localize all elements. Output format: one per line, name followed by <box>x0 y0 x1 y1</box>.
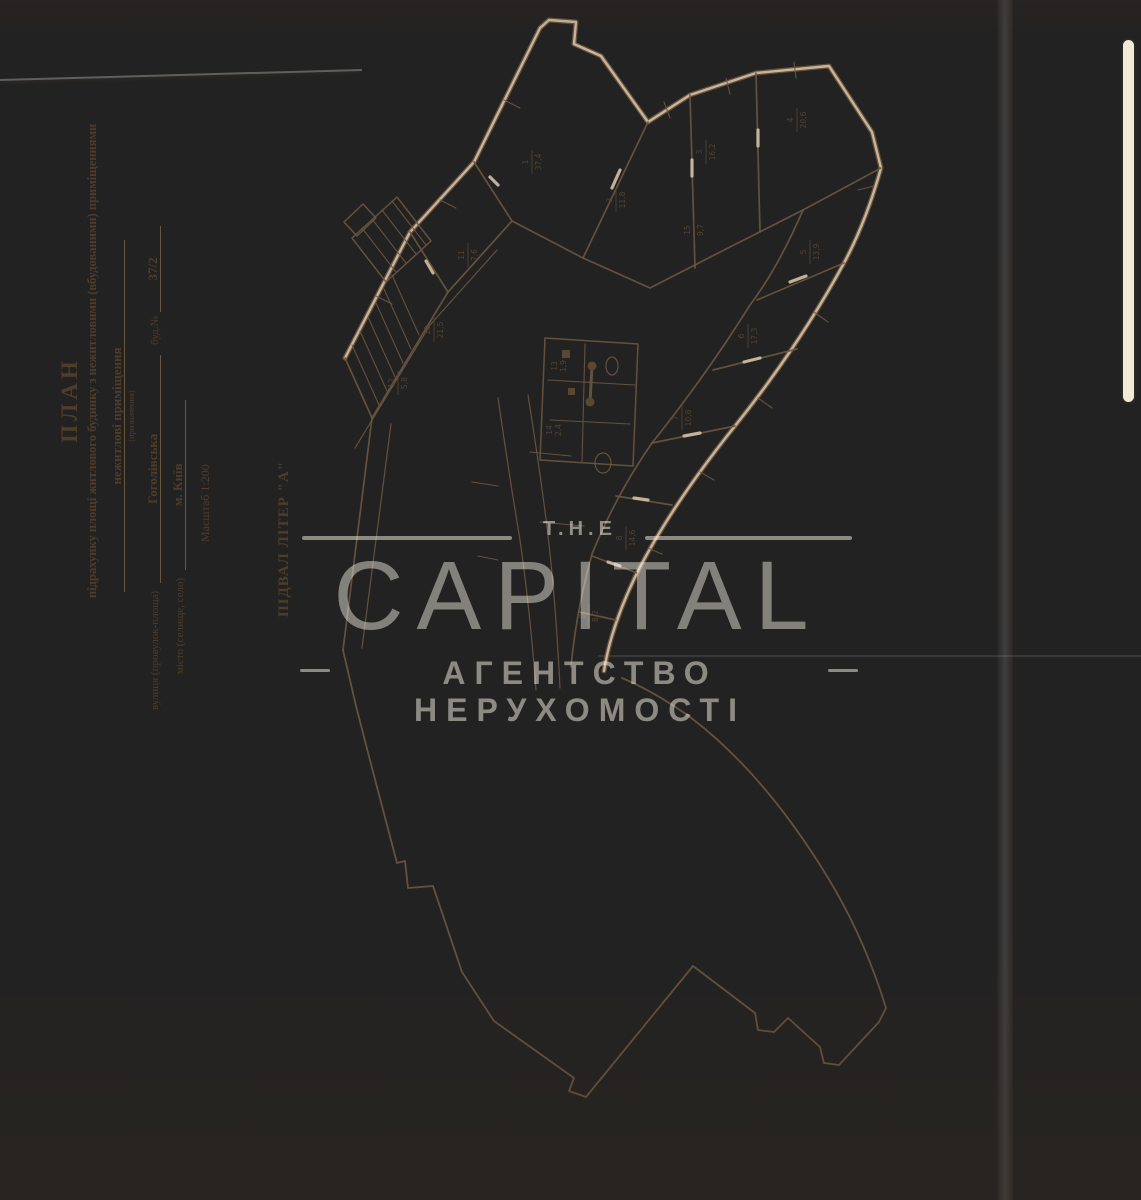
purpose-caption: (призначення) <box>126 390 136 441</box>
room-label: 814,6 <box>615 526 637 550</box>
svg-text:21,5: 21,5 <box>436 321 445 338</box>
svg-text:9: 9 <box>578 613 587 618</box>
scale-label: Масштаб 1:200 <box>198 90 213 710</box>
document-header: ПЛАН підрахунку площі житлового будинку … <box>55 90 265 710</box>
svg-text:11,8: 11,8 <box>618 191 627 208</box>
svg-text:12: 12 <box>387 378 396 388</box>
room-label: 710,8 <box>671 406 693 430</box>
svg-text:8,2: 8,2 <box>591 610 600 622</box>
svg-text:7,6: 7,6 <box>470 249 479 261</box>
svg-text:20,6: 20,6 <box>799 111 808 128</box>
svg-text:6: 6 <box>737 333 746 338</box>
svg-text:9,7: 9,7 <box>696 224 705 236</box>
svg-text:8: 8 <box>615 535 624 540</box>
svg-text:7: 7 <box>671 415 680 420</box>
svg-text:10,8: 10,8 <box>684 409 693 426</box>
room-label: 420,6 <box>786 108 808 132</box>
svg-text:11: 11 <box>457 250 466 260</box>
svg-text:16,2: 16,2 <box>708 143 717 160</box>
room-label: 142,4 <box>545 424 563 436</box>
svg-text:14,6: 14,6 <box>628 529 637 546</box>
svg-text:2: 2 <box>605 197 614 202</box>
room-label: 131,9 <box>550 360 568 372</box>
svg-text:13,9: 13,9 <box>812 243 821 260</box>
building-label: буд.№ <box>149 316 161 345</box>
svg-text:2,4: 2,4 <box>554 424 563 436</box>
svg-text:5,8: 5,8 <box>400 377 409 389</box>
svg-text:13: 13 <box>550 361 559 371</box>
room-label: 513,9 <box>799 240 821 264</box>
street-value: Гоголівська <box>145 355 161 583</box>
city-value: м. Київ <box>170 400 186 570</box>
svg-text:15: 15 <box>683 225 692 235</box>
svg-text:5: 5 <box>799 249 808 254</box>
room-label: 159,7 <box>683 218 705 242</box>
svg-text:1,9: 1,9 <box>559 360 568 372</box>
svg-text:4: 4 <box>786 117 795 122</box>
svg-text:14: 14 <box>545 425 554 435</box>
room-label: 98,2 <box>578 604 600 628</box>
page-title: ПЛАН <box>57 90 83 710</box>
room-label: 617,3 <box>737 324 759 348</box>
basement-label: ПІДВАЛ ЛІТЕР "А" <box>276 434 300 644</box>
room-label: 117,6 <box>457 243 479 267</box>
page-subtitle: підрахунку площі житлового будинку з неж… <box>85 90 100 710</box>
purpose-value: нежитлові приміщення <box>109 240 125 592</box>
svg-text:17,3: 17,3 <box>750 327 759 344</box>
svg-text:3: 3 <box>695 149 704 154</box>
room-label: 1021,5 <box>423 318 445 342</box>
city-label: місто (селище, село) <box>174 578 186 674</box>
room-label: 137,4 <box>521 150 543 174</box>
plan-inner-wall <box>372 210 803 667</box>
svg-text:1: 1 <box>521 159 530 164</box>
room-label: 316,2 <box>695 140 717 164</box>
building-value: 37/2 <box>145 226 161 312</box>
scanned-plan-photo: 137,4 211,8 316,2 420,6 513,9 617,3 710,… <box>0 0 1141 1200</box>
room-label: 125,8 <box>387 371 409 395</box>
room-label: 211,8 <box>605 188 627 212</box>
viewer-scrollbar-thumb[interactable] <box>1123 40 1134 402</box>
svg-text:37,4: 37,4 <box>534 153 543 170</box>
basement-outline <box>343 650 886 1097</box>
svg-text:10: 10 <box>423 325 432 335</box>
street-label: вулиця (провулок-площа) <box>149 591 161 710</box>
